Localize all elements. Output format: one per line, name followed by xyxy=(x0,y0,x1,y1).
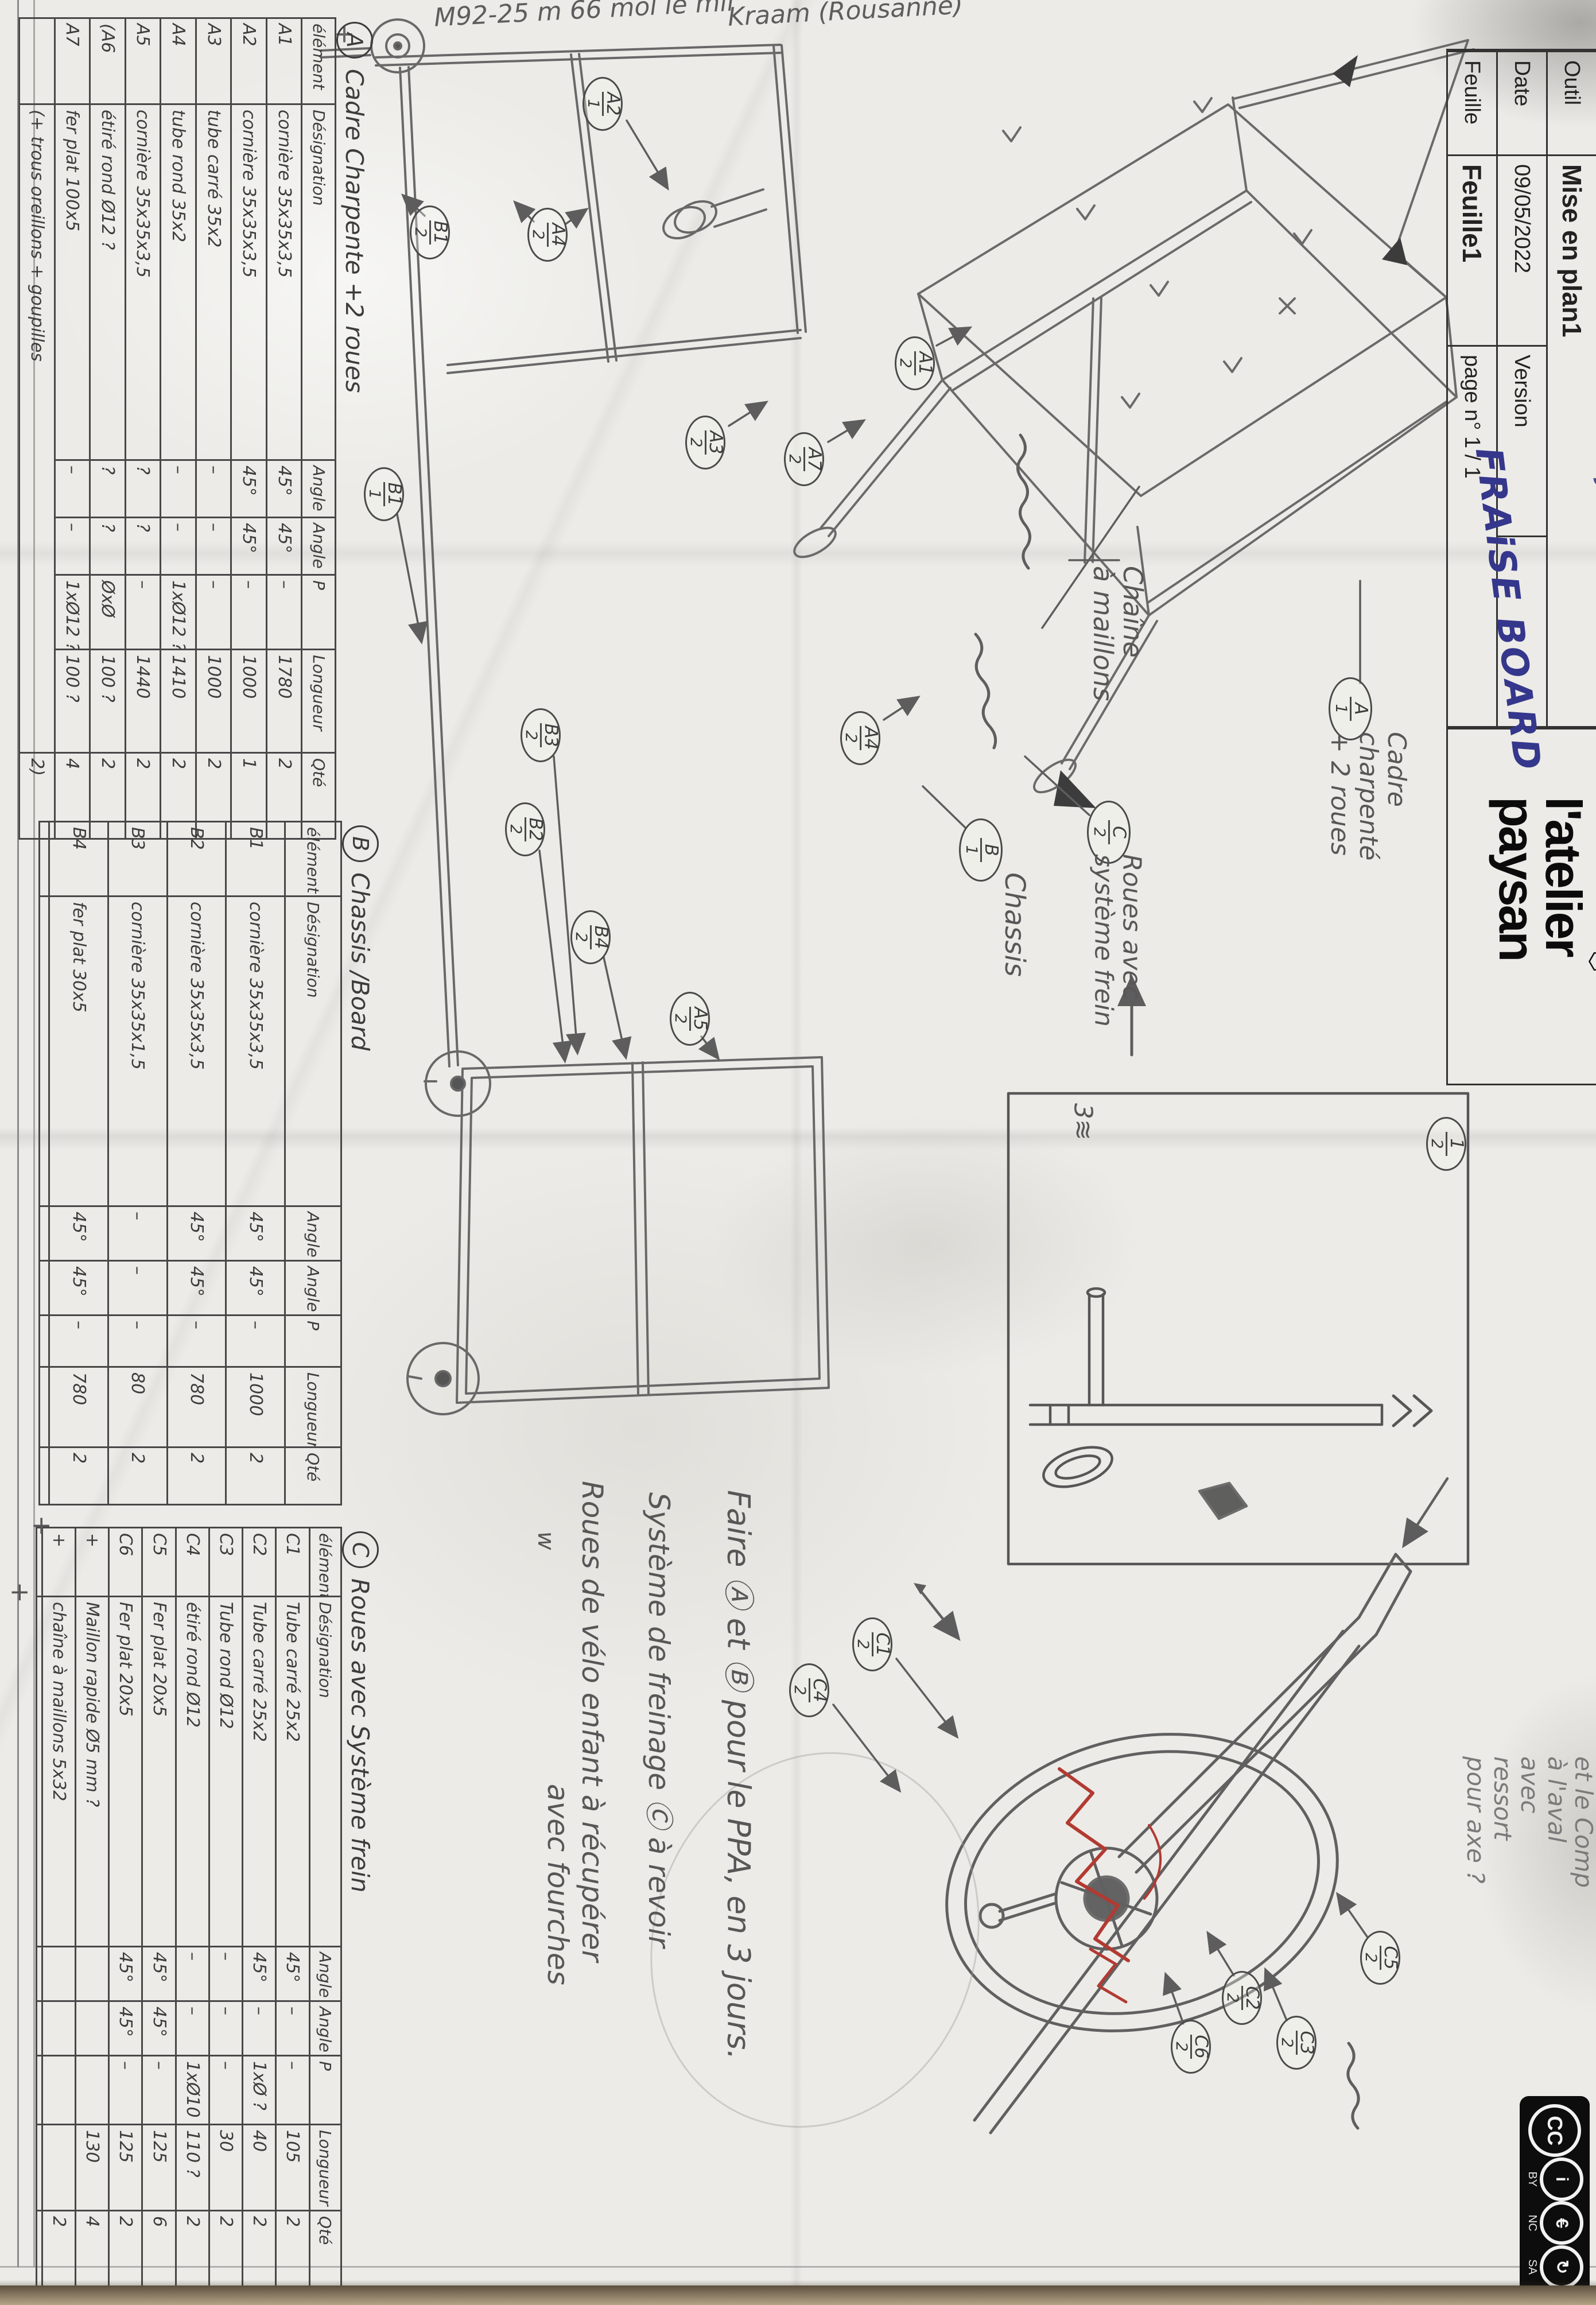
titleblock-value-feuille: Feuille1 xyxy=(1447,156,1497,346)
table-cell: – xyxy=(55,518,90,575)
chain-note: Chaîne à maillons xyxy=(1088,566,1147,701)
table-cell: cornière 35x35x3,5 xyxy=(266,104,302,460)
cc-sa-label: SA xyxy=(1526,2259,1539,2275)
detail-box-sketch xyxy=(1008,1093,1468,1564)
table-cell: 1410 xyxy=(161,650,196,753)
balloon-denominator: 2 xyxy=(522,723,541,747)
table-cell: – xyxy=(161,460,196,518)
balloon-denominator: 2 xyxy=(1277,2031,1297,2054)
balloon-label: C2 xyxy=(1243,1986,1261,2009)
table-cell: A3 xyxy=(196,18,231,104)
balloon-denominator: 1 xyxy=(365,482,385,506)
table-cell: 1780 xyxy=(266,650,302,753)
table-cell: – xyxy=(243,2001,276,2056)
section-mark: 3≋ xyxy=(1069,1103,1097,1140)
titleblock-value-outil: Mise en plan1 xyxy=(1547,156,1596,727)
table-cell: cornière 35x35x3,5 xyxy=(226,897,285,1206)
atelier-paysan-logo: l'atelier paysan xyxy=(1493,797,1586,960)
table-cell: 2 xyxy=(49,1448,108,1505)
bom-a-title-text: Cadre Charpente +2 roues xyxy=(341,69,369,393)
table-cell: – xyxy=(49,1316,108,1367)
table-cell: A5 xyxy=(125,18,161,104)
table-row: C3Tube rond Ø12–––302 xyxy=(209,1528,242,2291)
balloon-A1-2: A12 xyxy=(898,336,935,387)
column-header: élément xyxy=(285,822,341,897)
column-header: Longueur xyxy=(302,650,336,753)
w-tick-mark: w xyxy=(533,1531,558,1550)
table-cell: fer plat 100x5 xyxy=(55,104,90,460)
table-cell: Fer plat 20x5 xyxy=(109,1597,142,1947)
table-cell: Tube rond Ø12 xyxy=(209,1597,242,1947)
table-cell: – xyxy=(231,575,267,650)
table-row: C4étiré rond Ø12––1xØ10 ?110 ?2 xyxy=(176,1528,209,2291)
balloon-C1-2: C12 xyxy=(856,1617,892,1668)
balloon-label: C6 xyxy=(1192,2035,1210,2058)
bom-c-grid: élémentDésignationAngle 1Angle 2PLongueu… xyxy=(36,1527,342,2292)
table-cell: A4 xyxy=(161,18,196,104)
balloon-C5-2: C52 xyxy=(1364,1931,1400,1981)
bom-b-grid: élémentDésignationAngle 1Angle 2PLongueu… xyxy=(38,821,342,1505)
balloon-A4-2: A42 xyxy=(844,711,880,762)
balloon-1-2: 12 xyxy=(1430,1117,1466,1167)
balloon-label: A xyxy=(1352,703,1369,715)
table-cell: 80 xyxy=(108,1367,167,1448)
table-cell xyxy=(76,1947,109,2001)
table-cell: cornière 35x35x1,5 xyxy=(108,897,167,1206)
table-cell xyxy=(42,2125,75,2211)
column-header: Désignation xyxy=(302,104,336,460)
table-row: A2cornière 35x35x3,545°45°–10001 xyxy=(231,18,267,839)
balloon-denominator: 2 xyxy=(785,447,805,471)
table-cell: A7 xyxy=(55,18,90,104)
table-cell: 1xØ12 ? xyxy=(161,575,196,650)
table-cell: 2 xyxy=(276,2211,309,2291)
table-cell: – xyxy=(266,575,302,650)
balloon-B3-2: B32 xyxy=(524,708,561,759)
balloon-label: A4 xyxy=(549,223,566,247)
balloon-denominator: 2 xyxy=(1223,1986,1242,2009)
table-cell: 1000 xyxy=(231,650,267,753)
bom-b-title-text: Chassis /Board xyxy=(347,872,375,1051)
balloon-denominator: 2 xyxy=(411,220,430,244)
table-cell: B2 xyxy=(167,822,226,897)
table-row: B3cornière 35x35x1,5–––802 xyxy=(108,822,167,1505)
table-cell: 45° xyxy=(49,1206,108,1261)
balloon-label: 1 xyxy=(1447,1138,1465,1150)
balloon-label: B xyxy=(982,844,1000,856)
table-cell: 2 xyxy=(226,1448,285,1505)
column-header: Longueur xyxy=(309,2125,341,2211)
pencil-note-4: avec fourches xyxy=(542,1784,574,1985)
balloon-denominator: 2 xyxy=(506,817,526,841)
table-cell: – xyxy=(108,1316,167,1367)
table-cell: + xyxy=(42,1528,75,1597)
table-cell: 780 xyxy=(167,1367,226,1448)
table-row: +chaîne à maillons 5x322 xyxy=(42,1528,75,2291)
balloon-label: A7 xyxy=(805,448,823,471)
balloon-denominator: 2 xyxy=(1361,1946,1381,1969)
balloon-denominator: 2 xyxy=(841,726,861,750)
column-header: Angle 2 xyxy=(285,1261,341,1316)
table-cell: 40 xyxy=(243,2125,276,2211)
table-cell: ? xyxy=(90,460,126,518)
table-cell: + xyxy=(76,1528,109,1597)
chain-sketch xyxy=(976,435,1358,2128)
table-row: (A6étiré rond Ø12 ???ØxØ100 ?2 xyxy=(90,18,126,839)
titleblock-value-date: 09/05/2022 xyxy=(1497,156,1547,346)
bom-b-balloon-letter: B xyxy=(342,825,379,862)
table-cell: – xyxy=(109,2056,142,2125)
table-cell: – xyxy=(125,575,161,650)
plus-mark-2: + xyxy=(6,1582,34,1603)
table-cell: B1 xyxy=(226,822,285,897)
cc-nc-label: NC xyxy=(1526,2215,1539,2232)
balloon-denominator: 2 xyxy=(572,925,591,949)
logo-line1: l'atelier xyxy=(1540,797,1586,960)
table-cell: 1xØ10 ? xyxy=(176,2056,209,2125)
plus-mark-1: + xyxy=(28,1515,56,1536)
table-cell: A1 xyxy=(266,18,302,104)
bom-c-title: CRoues avec Système frein xyxy=(342,1527,379,2290)
table-cell: – xyxy=(55,460,90,518)
table-cell: Tube carré 25x2 xyxy=(276,1597,309,1947)
table-row: A1cornière 35x35x3,545°45°–17802 xyxy=(266,18,302,839)
pencil-note-2: Système de freinage Ⓒ à revoir xyxy=(643,1492,675,1947)
table-cell: – xyxy=(108,1261,167,1316)
table-cell: ? xyxy=(90,518,126,575)
balloon-label: A3 xyxy=(706,431,724,455)
table-row: C2Tube carré 25x245°–1xØ ?402 xyxy=(243,1528,276,2291)
balloon-label: C4 xyxy=(810,1678,828,1702)
table-cell: – xyxy=(209,2001,242,2056)
balloon-B2-2: B22 xyxy=(508,802,545,853)
balloon-A-1: A1 xyxy=(1332,677,1372,737)
table-cell: C2 xyxy=(243,1528,276,1597)
table-cell: 110 ? xyxy=(176,2125,209,2211)
table-cell: tube carré 35x2 xyxy=(196,104,231,460)
table-row: +Maillon rapide Ø5 mm ?1304 xyxy=(76,1528,109,2291)
balloon-denominator: 2 xyxy=(1090,820,1109,844)
column-header: P xyxy=(285,1316,341,1367)
table-cell xyxy=(76,2001,109,2056)
balloon-denominator: 1 xyxy=(584,92,603,115)
table-cell: (A6 xyxy=(90,18,126,104)
balloon-label: A4 xyxy=(861,727,879,750)
table-cell: étiré rond Ø12 ? xyxy=(90,104,126,460)
balloon-label: B1 xyxy=(385,483,403,506)
balloon-label: A2 xyxy=(604,92,622,116)
table-cell: ØxØ xyxy=(90,575,126,650)
table-cell: – xyxy=(196,575,231,650)
column-header: élément xyxy=(302,18,336,104)
table-cell: 2 xyxy=(167,1448,226,1505)
balloon-C6-2: C62 xyxy=(1174,2020,1211,2070)
column-header: Angle 1 xyxy=(285,1206,341,1261)
table-cell: C3 xyxy=(209,1528,242,1597)
balloon-label: B3 xyxy=(542,724,560,747)
balloon-C4-2: C42 xyxy=(793,1663,829,1714)
table-cell: 45° xyxy=(266,518,302,575)
table-cell: – xyxy=(226,1316,285,1367)
scanned-plan-sheet: Outil Mise en plan1 Date 09/05/2022 Vers… xyxy=(0,0,1596,2305)
table-cell: 105 xyxy=(276,2125,309,2211)
balloon-A5-2: A52 xyxy=(673,992,710,1042)
balloon-B1-2: B12 xyxy=(413,205,450,256)
bom-c-title-text: Roues avec Système frein xyxy=(347,1578,375,1892)
cc-license-badge: CCiBY€NC↻SA xyxy=(1520,2096,1596,2166)
empty-row xyxy=(37,1528,42,2291)
balloon-A3-2: A32 xyxy=(689,416,725,466)
table-cell: Fer plat 20x5 xyxy=(142,1597,176,1947)
column-header: Désignation xyxy=(309,1597,341,1947)
table-row: A3tube carré 35x2–––10002 xyxy=(196,18,231,839)
table-cell: B3 xyxy=(108,822,167,897)
logo-line2: paysan xyxy=(1493,797,1540,960)
column-header: Désignation xyxy=(285,897,341,1206)
table-cell: – xyxy=(209,1947,242,2001)
column-header: Qté xyxy=(309,2211,341,2291)
legend-text-B: Chassis xyxy=(999,872,1030,977)
table-cell: 45° xyxy=(49,1261,108,1316)
table-cell: 2 xyxy=(209,2211,242,2291)
bom-a-title: ACadre Charpente +2 roues xyxy=(336,17,373,838)
table-cell: 125 xyxy=(142,2125,176,2211)
balloon-label: B1 xyxy=(431,221,449,245)
table-cell xyxy=(42,2001,75,2056)
column-header: Angle 1 xyxy=(302,460,336,518)
table-cell: ? xyxy=(125,518,161,575)
table-cell: 2 xyxy=(108,1448,167,1505)
table-row: A5cornière 35x35x3,5??–14402 xyxy=(125,18,161,839)
column-header: Angle 2 xyxy=(302,518,336,575)
balloon-B-1: B1 xyxy=(962,818,1003,878)
table-cell: C5 xyxy=(142,1528,176,1597)
balloon-A2-1: A21 xyxy=(586,77,623,127)
table-cell: 2 xyxy=(243,2211,276,2291)
table-cell: fer plat 30x5 xyxy=(49,897,108,1206)
column-header: Qté xyxy=(285,1448,341,1505)
table-cell: 45° xyxy=(243,1947,276,2001)
column-header: Angle 2 xyxy=(309,2001,341,2056)
titleblock-label-date: Date xyxy=(1497,52,1547,156)
table-cell: 130 xyxy=(76,2125,109,2211)
table-cell: 45° xyxy=(109,1947,142,2001)
balloon-denominator: 1 xyxy=(962,838,981,862)
table-cell: Maillon rapide Ø5 mm ? xyxy=(76,1597,109,1947)
table-cell: – xyxy=(209,2056,242,2125)
chassis-frame-sketch xyxy=(407,1051,829,1414)
side-cursive-note: et le Comp à l'aval avec ressort pour ax… xyxy=(1462,1756,1596,1890)
table-cell: 100 ? xyxy=(90,650,126,753)
table-row: A4tube rond 35x2––1xØ12 ?14102 xyxy=(161,18,196,839)
table-cell: 45° xyxy=(226,1261,285,1316)
table-cell xyxy=(76,2056,109,2125)
balloon-C-2: C2 xyxy=(1090,801,1131,860)
balloon-A7-2: A72 xyxy=(787,432,824,483)
table-cell: – xyxy=(167,1316,226,1367)
legend-text-A: Cadre charpenté + 2 roues xyxy=(1326,732,1411,860)
table-row: C5Fer plat 20x545°45°–1256 xyxy=(142,1528,176,2291)
pencil-note-3: Roues de vélo enfant à récupérer xyxy=(576,1481,608,1962)
balloon-label: B4 xyxy=(592,926,609,949)
cc-icon: CC xyxy=(1528,2104,1581,2157)
balloon-denominator: 2 xyxy=(790,1678,810,1702)
table-row: A7fer plat 100x5––1xØ12 ?100 ?4 xyxy=(55,18,90,839)
table-cell xyxy=(42,2056,75,2125)
table-cell: 45° xyxy=(226,1206,285,1261)
balloon-denominator: 2 xyxy=(1172,2035,1191,2058)
table-cell: tube rond 35x2 xyxy=(161,104,196,460)
table-cell: – xyxy=(176,2001,209,2056)
balloon-denominator: 2 xyxy=(671,1007,690,1030)
table-note-row: (+ trous oreillons + goupilles2) xyxy=(20,18,55,839)
legend-text-C: Roues avec système frein xyxy=(1089,854,1146,1027)
table-cell: chaîne à maillons 5x32 xyxy=(42,1597,75,1947)
cc-by-icon: i xyxy=(1540,2157,1584,2201)
table-cell: 45° xyxy=(167,1261,226,1316)
titleblock-label-outil: Outil xyxy=(1547,52,1596,156)
table-cell: 100 ? xyxy=(55,650,90,753)
table-cell: 45° xyxy=(109,2001,142,2056)
balloon-denominator: 2 xyxy=(529,223,548,246)
table-cell: 45° xyxy=(142,1947,176,2001)
table-cell: C1 xyxy=(276,1528,309,1597)
table-cell: 780 xyxy=(49,1367,108,1448)
table-cell: étiré rond Ø12 xyxy=(176,1597,209,1947)
table-cell: 2 xyxy=(42,2211,75,2291)
balloon-C3-2: C32 xyxy=(1280,2016,1317,2066)
balloon-label: C xyxy=(1110,826,1128,839)
table-cell: 45° xyxy=(142,2001,176,2056)
table-row: B1cornière 35x35x3,545°45°–10002 xyxy=(226,822,285,1505)
table-cell: Tube carré 25x2 xyxy=(243,1597,276,1947)
table-cell: cornière 35x35x3,5 xyxy=(167,897,226,1206)
balloon-label: B2 xyxy=(526,818,544,841)
empty-row xyxy=(40,822,49,1505)
table-cell: 1xØ12 ? xyxy=(55,575,90,650)
table-cell: 45° xyxy=(231,518,267,575)
table-cell: 45° xyxy=(276,1947,309,2001)
table-row: B2cornière 35x35x3,545°45°–7802 xyxy=(167,822,226,1505)
table-cell: 30 xyxy=(209,2125,242,2211)
table-cell: – xyxy=(196,518,231,575)
balloon-C2-2: C22 xyxy=(1225,1971,1262,2021)
table-cell: 2 xyxy=(109,2211,142,2291)
table-row: B4fer plat 30x545°45°–7802 xyxy=(49,822,108,1505)
column-header: Angle 1 xyxy=(309,1947,341,2001)
table-cell: B4 xyxy=(49,822,108,897)
balloon-A4-2: A42 xyxy=(531,208,568,258)
table-cell: 2 xyxy=(176,2211,209,2291)
bom-a-grid: élémentDésignationAngle 1Angle 2PLongueu… xyxy=(18,17,336,840)
column-header: P xyxy=(302,575,336,650)
table-cell: cornière 35x35x3,5 xyxy=(231,104,267,460)
table-cell: 1000 xyxy=(196,650,231,753)
table-cell: – xyxy=(142,2056,176,2125)
column-header: P xyxy=(309,2056,341,2125)
bom-b-title: BChassis /Board xyxy=(342,821,379,1504)
pencil-note-1: Faire Ⓐ et Ⓑ pour le PPA, en 3 jours. xyxy=(721,1490,755,2060)
ladder-frame-sketch xyxy=(321,20,806,1066)
table-row: C6Fer plat 20x545°45°–1252 xyxy=(109,1528,142,2291)
table-cell: 1xØ ? xyxy=(243,2056,276,2125)
table-row: C1Tube carré 25x245°––1052 xyxy=(276,1528,309,2291)
balloon-denominator: 2 xyxy=(1427,1132,1447,1155)
column-header: Longueur xyxy=(285,1367,341,1448)
balloon-denominator: 2 xyxy=(686,430,706,454)
table-cell xyxy=(42,1947,75,2001)
balloon-label: C5 xyxy=(1381,1946,1399,1969)
balloon-denominator: 2 xyxy=(896,351,915,375)
table-note: (+ trous oreillons + goupilles xyxy=(20,104,55,753)
table-cell: 125 xyxy=(109,2125,142,2211)
balloon-label: C3 xyxy=(1298,2031,1315,2054)
column-header: élément xyxy=(309,1528,341,1597)
cc-nc-icon: € xyxy=(1540,2201,1584,2245)
titleblock-label-feuille: Feuille xyxy=(1447,52,1497,156)
cc-by-label: BY xyxy=(1526,2171,1539,2187)
bom-c-balloon-letter: C xyxy=(342,1531,379,1568)
table-cell: 45° xyxy=(231,460,267,518)
table-cell: – xyxy=(161,518,196,575)
table-cell: – xyxy=(108,1206,167,1261)
table-cell: 45° xyxy=(167,1206,226,1261)
balloon-label: A5 xyxy=(691,1007,709,1031)
balloon-B4-2: B42 xyxy=(574,910,611,961)
table-cell: – xyxy=(176,1947,209,2001)
table-cell: C4 xyxy=(176,1528,209,1597)
table-cell: 4 xyxy=(76,2211,109,2291)
bom-a-balloon-letter: A xyxy=(336,22,373,59)
table-cell: C6 xyxy=(109,1528,142,1597)
table-cell: A2 xyxy=(231,18,267,104)
table-cell: – xyxy=(276,2056,309,2125)
table-cell: 45° xyxy=(266,460,302,518)
table-cell: – xyxy=(276,2001,309,2056)
table-cell: – xyxy=(196,460,231,518)
balloon-label: C1 xyxy=(873,1632,891,1656)
balloon-B1-1: B11 xyxy=(367,467,404,518)
table-cell: cornière 35x35x3,5 xyxy=(125,104,161,460)
balloon-denominator: 1 xyxy=(1331,697,1351,720)
table-cell: 6 xyxy=(142,2211,176,2291)
table-cell: 1000 xyxy=(226,1367,285,1448)
balloon-label: A1 xyxy=(916,352,934,375)
logo-bolt-icon: ⬡ xyxy=(1585,950,1596,972)
table-cell: 1440 xyxy=(125,650,161,753)
desk-edge xyxy=(0,2285,1596,2305)
balloon-denominator: 2 xyxy=(853,1632,873,1656)
table-cell: ? xyxy=(125,460,161,518)
